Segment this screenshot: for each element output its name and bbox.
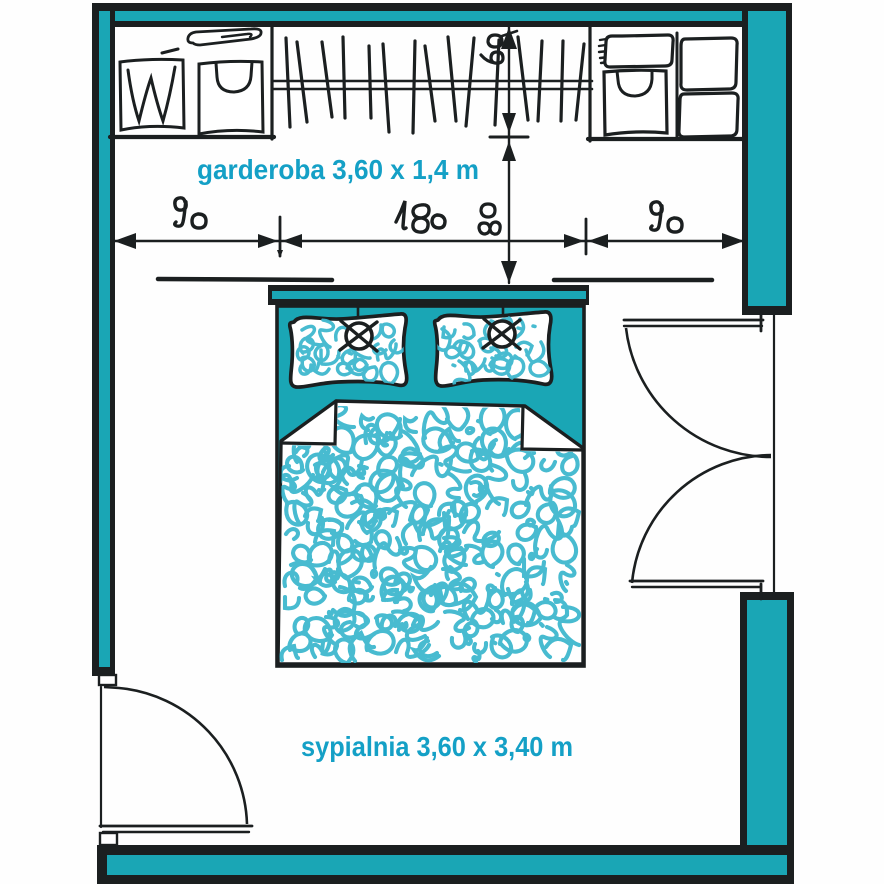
svg-text:garderoba 3,60 x 1,4 m: garderoba 3,60 x 1,4 m	[197, 154, 479, 185]
svg-text:sypialnia 3,60 x 3,40 m: sypialnia 3,60 x 3,40 m	[301, 731, 573, 762]
